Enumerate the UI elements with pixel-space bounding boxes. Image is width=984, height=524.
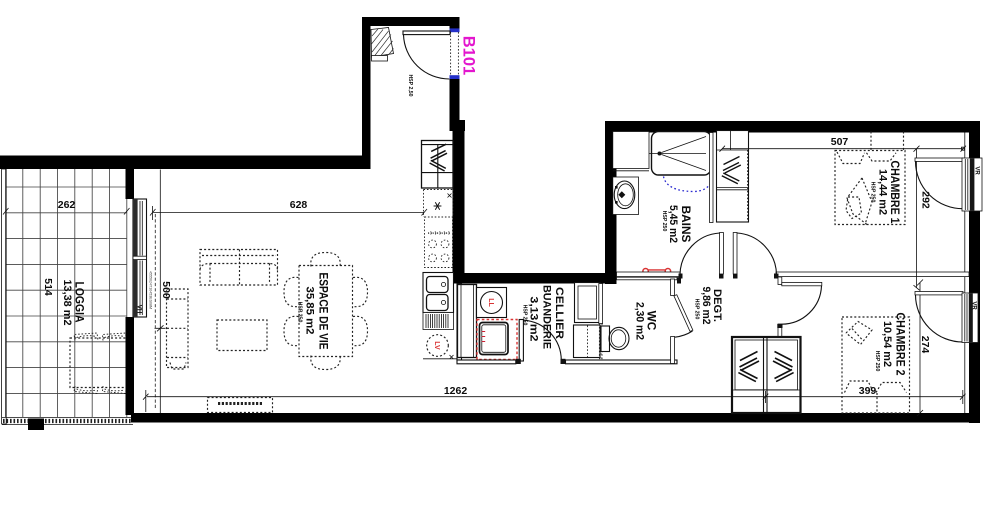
svg-text:HSP 250: HSP 250: [297, 302, 303, 323]
svg-text:CELLIER: CELLIER: [553, 287, 565, 339]
svg-text:13,38 m2: 13,38 m2: [61, 280, 73, 326]
svg-text:WC: WC: [645, 311, 659, 331]
svg-text:CHAMBRE 2: CHAMBRE 2: [894, 313, 908, 376]
svg-text:399: 399: [859, 385, 877, 397]
svg-text:5,45 m2: 5,45 m2: [667, 205, 679, 243]
svg-text:HSP 250: HSP 250: [694, 299, 700, 320]
svg-text:2,30 m2: 2,30 m2: [634, 302, 646, 340]
svg-text:LV: LV: [433, 341, 440, 350]
svg-text:1262: 1262: [444, 385, 468, 397]
svg-text:LOGGIA: LOGGIA: [73, 282, 85, 323]
svg-text:HSP 250: HSP 250: [661, 211, 667, 232]
svg-text:HSP 2,50: HSP 2,50: [407, 74, 413, 96]
svg-text:35,85 m2: 35,85 m2: [304, 287, 316, 335]
svg-text:274: 274: [919, 336, 931, 354]
svg-text:507: 507: [831, 136, 849, 148]
svg-text:HSP 250: HSP 250: [870, 182, 876, 203]
svg-text:VR: VR: [970, 301, 976, 310]
svg-text:HSP 250: HSP 250: [522, 305, 528, 326]
svg-text:ESPACE DE VIE: ESPACE DE VIE: [317, 273, 331, 350]
svg-text:10,54 m2: 10,54 m2: [881, 321, 893, 367]
svg-text:CHAMBRE 1: CHAMBRE 1: [888, 161, 902, 224]
svg-text:14,44 m2: 14,44 m2: [877, 169, 889, 215]
svg-text:VR: VR: [974, 166, 980, 175]
svg-text:3,13 m2: 3,13 m2: [528, 297, 540, 342]
svg-text:4555024T10453ES08M: 4555024T10453ES08M: [149, 271, 153, 309]
svg-text:514: 514: [42, 278, 54, 296]
svg-text:LL: LL: [487, 298, 494, 307]
svg-text:628: 628: [290, 199, 308, 211]
svg-text:BAINS: BAINS: [679, 206, 693, 243]
svg-text:HSP 250: HSP 250: [874, 351, 880, 372]
svg-text:292: 292: [920, 191, 932, 209]
svg-text:VH: VH: [136, 305, 143, 314]
svg-text:BUANDERIE: BUANDERIE: [541, 285, 553, 350]
svg-text:B101: B101: [460, 36, 478, 75]
svg-text:262: 262: [58, 199, 76, 211]
svg-text:9,86 m2: 9,86 m2: [700, 287, 712, 325]
